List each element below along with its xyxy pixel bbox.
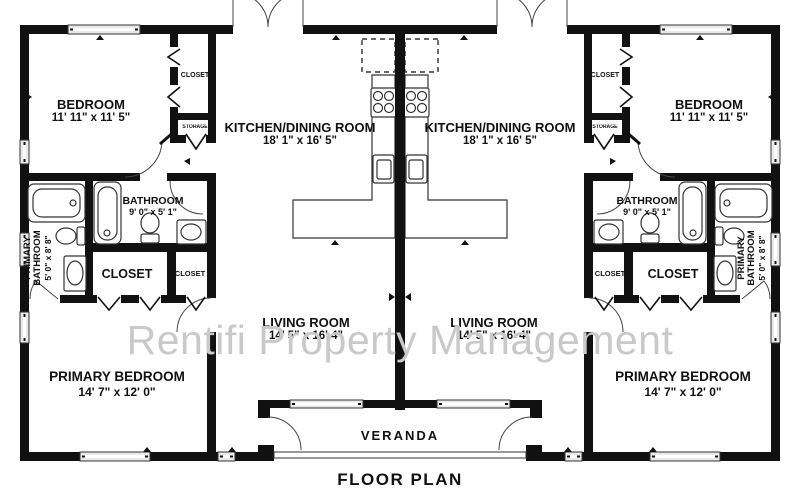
room-dims: 14' 7" x 12' 0" <box>40 385 194 399</box>
watermark-text: Rentifi Property Management <box>0 317 800 364</box>
burner <box>724 200 730 206</box>
room-name: BEDROOM <box>26 97 156 112</box>
window-tick <box>715 456 718 458</box>
primary-bathroom-right-label: PRIMARY BATHROOM 5' 0" x 8' 8" <box>737 218 777 298</box>
wall <box>206 135 216 143</box>
burner <box>407 92 416 101</box>
window-tick <box>358 403 361 405</box>
fixture <box>641 234 659 243</box>
burner <box>374 92 383 101</box>
window-tick <box>727 29 730 31</box>
burner <box>385 104 394 113</box>
window-tick <box>24 159 26 162</box>
room-name: STORAGE <box>179 125 211 131</box>
closet-small-left-label: CLOSET <box>170 270 210 279</box>
room-dims: 9' 0" x 5' 1" <box>117 207 189 218</box>
room-name: BATHROOM <box>117 195 189 207</box>
room-name: PRIMARY BATHROOM <box>23 218 43 298</box>
window-tick <box>230 456 233 458</box>
window-tick <box>145 456 148 458</box>
fixture <box>141 234 159 243</box>
wall <box>170 135 186 143</box>
fixture <box>715 227 723 245</box>
storage-right-label: STORAGE <box>586 124 624 131</box>
wall <box>622 34 630 47</box>
room-name: PRIMARY BEDROOM <box>40 369 194 385</box>
floor-plan-page: BEDROOM 11' 11" x 11' 5" KITCHEN/DINING … <box>0 0 800 493</box>
room-name: KITCHEN/DINING ROOM <box>220 120 380 135</box>
closet-right-label: CLOSET <box>641 267 705 282</box>
wall <box>303 25 400 34</box>
closet-small-right-label: CLOSET <box>590 270 630 279</box>
window-tick <box>505 403 508 405</box>
room-name: CLOSET <box>170 270 210 279</box>
room-name: CLOSET <box>176 72 214 80</box>
wall <box>29 173 140 181</box>
room-name: BEDROOM <box>644 97 774 112</box>
wall <box>584 113 622 120</box>
wall <box>584 173 633 181</box>
window-tick <box>220 456 223 458</box>
room-dims: 11' 11" x 11' 5" <box>644 112 774 126</box>
wall <box>161 295 186 303</box>
wall <box>178 113 216 120</box>
wall <box>170 34 178 47</box>
room-dims: 18' 1" x 16' 5" <box>420 135 580 149</box>
bathroom-left-label: BATHROOM 9' 0" x 5' 1" <box>117 195 189 218</box>
wall <box>400 25 497 34</box>
burner <box>374 104 383 113</box>
room-dims: 11' 11" x 11' 5" <box>26 112 156 126</box>
wall <box>584 181 593 298</box>
room-dims: 14' 7" x 12' 0" <box>606 385 760 399</box>
fixture <box>77 227 85 245</box>
window-tick <box>775 142 777 145</box>
window-tick <box>567 456 570 458</box>
wall <box>614 295 639 303</box>
window-tick <box>82 456 85 458</box>
window-tick <box>135 29 138 31</box>
room-dims: 9' 0" x 5' 1" <box>611 207 683 218</box>
room-dims: 5' 0" x 8' 8" <box>43 218 53 298</box>
burner <box>418 104 427 113</box>
fixture <box>409 160 423 179</box>
window-tick <box>662 29 665 31</box>
wall <box>207 181 216 298</box>
room-name: PRIMARY BEDROOM <box>606 369 760 385</box>
basin <box>67 261 83 285</box>
wall <box>584 135 594 143</box>
wall <box>121 295 139 303</box>
wall <box>258 445 274 461</box>
veranda-edge <box>274 452 526 458</box>
wall <box>660 173 771 181</box>
window-tick <box>775 159 777 162</box>
wall <box>614 135 630 143</box>
room-name: BATHROOM <box>611 195 683 207</box>
bedroom-right-label: BEDROOM 11' 11" x 11' 5" <box>644 97 774 126</box>
burner <box>104 230 110 236</box>
kitchen-left-label: KITCHEN/DINING ROOM 18' 1" x 16' 5" <box>220 120 380 149</box>
primary-bedroom-right-label: PRIMARY BEDROOM 14' 7" x 12' 0" <box>606 369 760 399</box>
room-name: CLOSET <box>586 72 624 80</box>
window-tick <box>70 29 73 31</box>
closet-bedroom-left-label: CLOSET <box>176 72 214 80</box>
room-name: CLOSET <box>95 267 159 282</box>
room-name: STORAGE <box>589 125 621 131</box>
wall <box>703 295 740 303</box>
window-tick <box>652 456 655 458</box>
room-name: CLOSET <box>641 267 705 282</box>
burner <box>385 92 394 101</box>
window-tick <box>577 456 580 458</box>
fixture <box>377 160 391 179</box>
room-name: CLOSET <box>590 270 630 279</box>
wall <box>526 445 542 461</box>
veranda-label: VERANDA <box>330 428 470 443</box>
window-tick <box>24 142 26 145</box>
bedroom-left-label: BEDROOM 11' 11" x 11' 5" <box>26 97 156 126</box>
burner <box>690 230 696 236</box>
burner <box>418 92 427 101</box>
basin <box>181 224 201 240</box>
closet-left-label: CLOSET <box>95 267 159 282</box>
floor-plan-graphics <box>0 0 800 493</box>
room-dims: 5' 0" x 8' 8" <box>757 218 767 298</box>
window-tick <box>439 403 442 405</box>
closet-bedroom-right-label: CLOSET <box>586 72 624 80</box>
basin <box>599 224 619 240</box>
burner <box>407 104 416 113</box>
burner <box>70 200 76 206</box>
bathroom-right-label: BATHROOM 9' 0" x 5' 1" <box>611 195 683 218</box>
floor-plan-title: FLOOR PLAN <box>290 470 510 490</box>
wall <box>167 173 216 181</box>
room-dims: 18' 1" x 16' 5" <box>220 135 380 149</box>
primary-bedroom-left-label: PRIMARY BEDROOM 14' 7" x 12' 0" <box>40 369 194 399</box>
basin <box>717 261 733 285</box>
storage-left-label: STORAGE <box>176 124 214 131</box>
primary-bathroom-left-label: PRIMARY BATHROOM 5' 0" x 8' 8" <box>23 218 63 298</box>
wall <box>661 295 679 303</box>
room-name: KITCHEN/DINING ROOM <box>420 120 580 135</box>
kitchen-right-label: KITCHEN/DINING ROOM 18' 1" x 16' 5" <box>420 120 580 149</box>
wall <box>60 295 97 303</box>
window-tick <box>292 403 295 405</box>
room-name: PRIMARY BATHROOM <box>737 218 757 298</box>
